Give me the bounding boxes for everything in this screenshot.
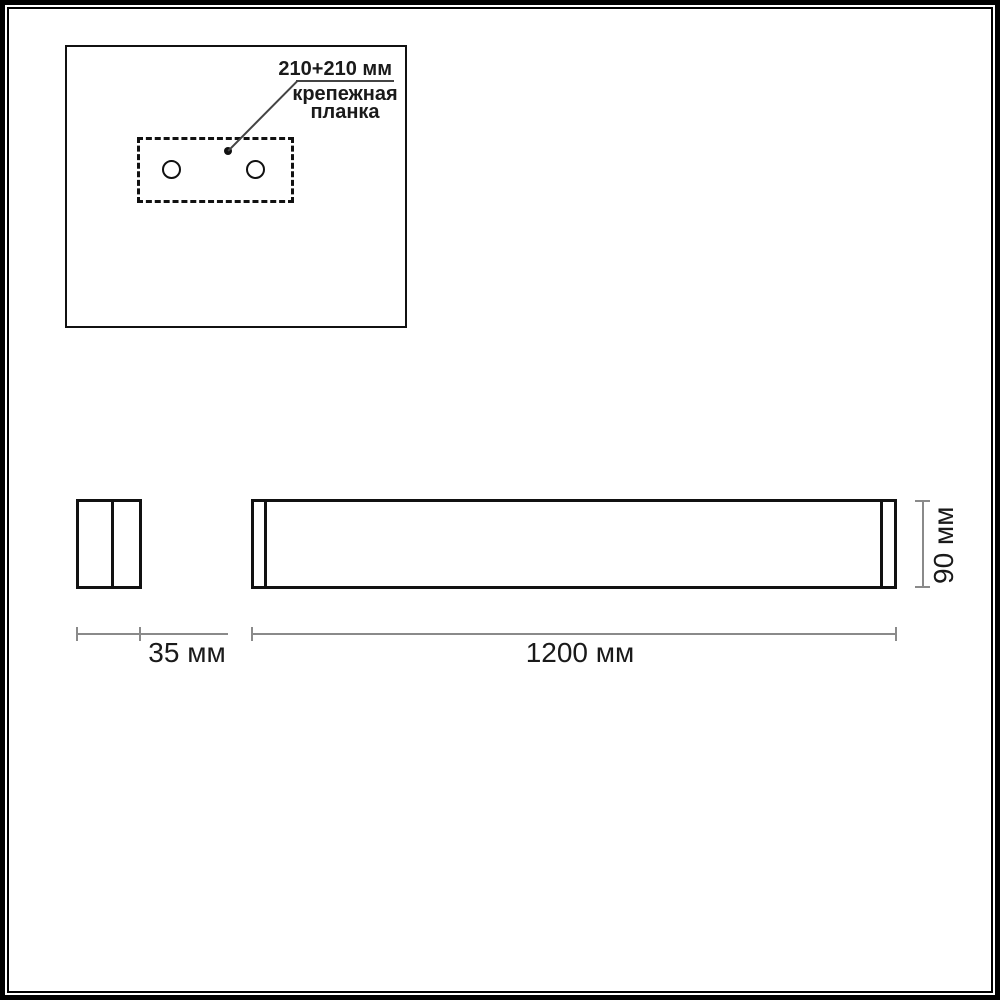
side-view-divider-line: [111, 501, 114, 587]
height-dimension-line: [922, 500, 924, 588]
mounting-hole-left: [162, 160, 181, 179]
dimension-drawing-page: 210+210 мм крепежная планка 35 мм 1200 м…: [0, 0, 1000, 1000]
height-dimension-tick-top: [915, 500, 930, 502]
length-dimension-label: 1200 мм: [480, 637, 680, 669]
front-view-left-cap-line: [264, 501, 267, 587]
length-dimension-tick-right: [895, 627, 897, 641]
side-view-outline: [76, 499, 142, 589]
length-dimension-line: [251, 633, 897, 635]
length-dimension-tick-left: [251, 627, 253, 641]
leader-line-underline: [296, 80, 394, 82]
mounting-plate-dashed-outline: [137, 137, 294, 203]
depth-dimension-line: [76, 633, 228, 635]
height-dimension-tick-bottom: [915, 586, 930, 588]
front-view-outline: [251, 499, 897, 589]
height-dimension-label: 90 мм: [928, 507, 960, 584]
depth-dimension-label: 35 мм: [137, 637, 237, 669]
mounting-hole-right: [246, 160, 265, 179]
depth-dimension-tick-left: [76, 627, 78, 641]
front-view-right-cap-line: [880, 501, 883, 587]
mounting-plate-label: крепежная планка: [290, 85, 400, 121]
mounting-span-label: 210+210 мм: [272, 60, 392, 79]
